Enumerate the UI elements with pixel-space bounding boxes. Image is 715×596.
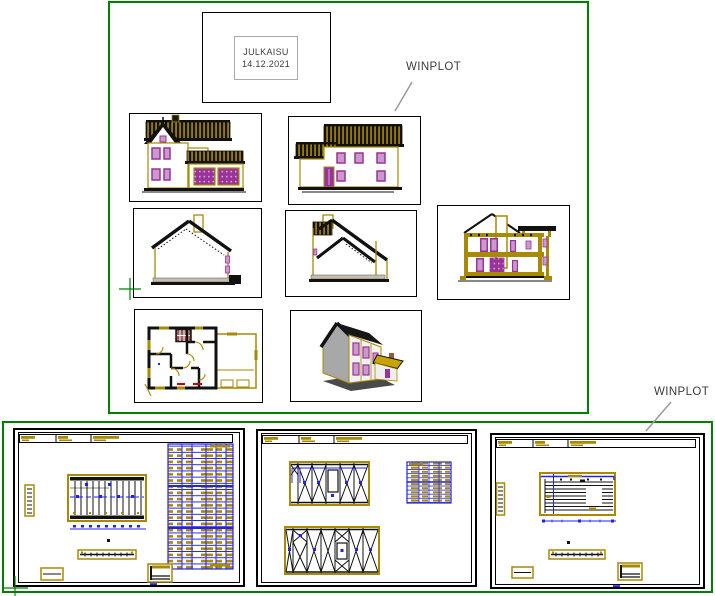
- viewport-rear-elevation[interactable]: [288, 116, 421, 205]
- section-b-drawing: [286, 211, 415, 295]
- axonometric-3d-drawing: [291, 311, 420, 400]
- rear-elevation-drawing: [289, 117, 419, 203]
- cross-section-drawing: [438, 206, 568, 298]
- viewport-section-b[interactable]: [285, 210, 417, 297]
- sheet-framing-plan-1[interactable]: [13, 428, 245, 592]
- sheet-2-drawing: [256, 429, 477, 587]
- winplot-label-top: WINPLOT: [406, 62, 461, 74]
- front-elevation-drawing: [130, 114, 260, 200]
- publication-stamp-box[interactable]: JULKAISU 14.12.2021: [202, 12, 331, 103]
- sheet-framing-elevations[interactable]: [256, 429, 477, 592]
- viewport-front-elevation[interactable]: [129, 113, 262, 202]
- stamp-title: JULKAISU: [243, 48, 288, 57]
- section-a-drawing: [134, 209, 260, 296]
- cad-plot-preview-canvas: { "stamp": { "line1": "JULKAISU", "line2…: [0, 0, 715, 596]
- viewport-section-a[interactable]: [133, 208, 262, 298]
- publication-stamp-inner-box: JULKAISU 14.12.2021: [234, 36, 298, 80]
- viewport-3d-view[interactable]: [290, 310, 422, 402]
- stamp-date: 14.12.2021: [242, 60, 290, 69]
- sheet-joist-plan[interactable]: [490, 433, 705, 594]
- viewport-floor-plan[interactable]: [134, 309, 263, 403]
- sheet-1-drawing: [13, 428, 245, 587]
- floor-plan-drawing: [135, 310, 261, 401]
- viewport-cross-section[interactable]: [437, 205, 570, 300]
- winplot-label-bottom: WINPLOT: [654, 387, 709, 399]
- sheet-3-drawing: [490, 433, 705, 589]
